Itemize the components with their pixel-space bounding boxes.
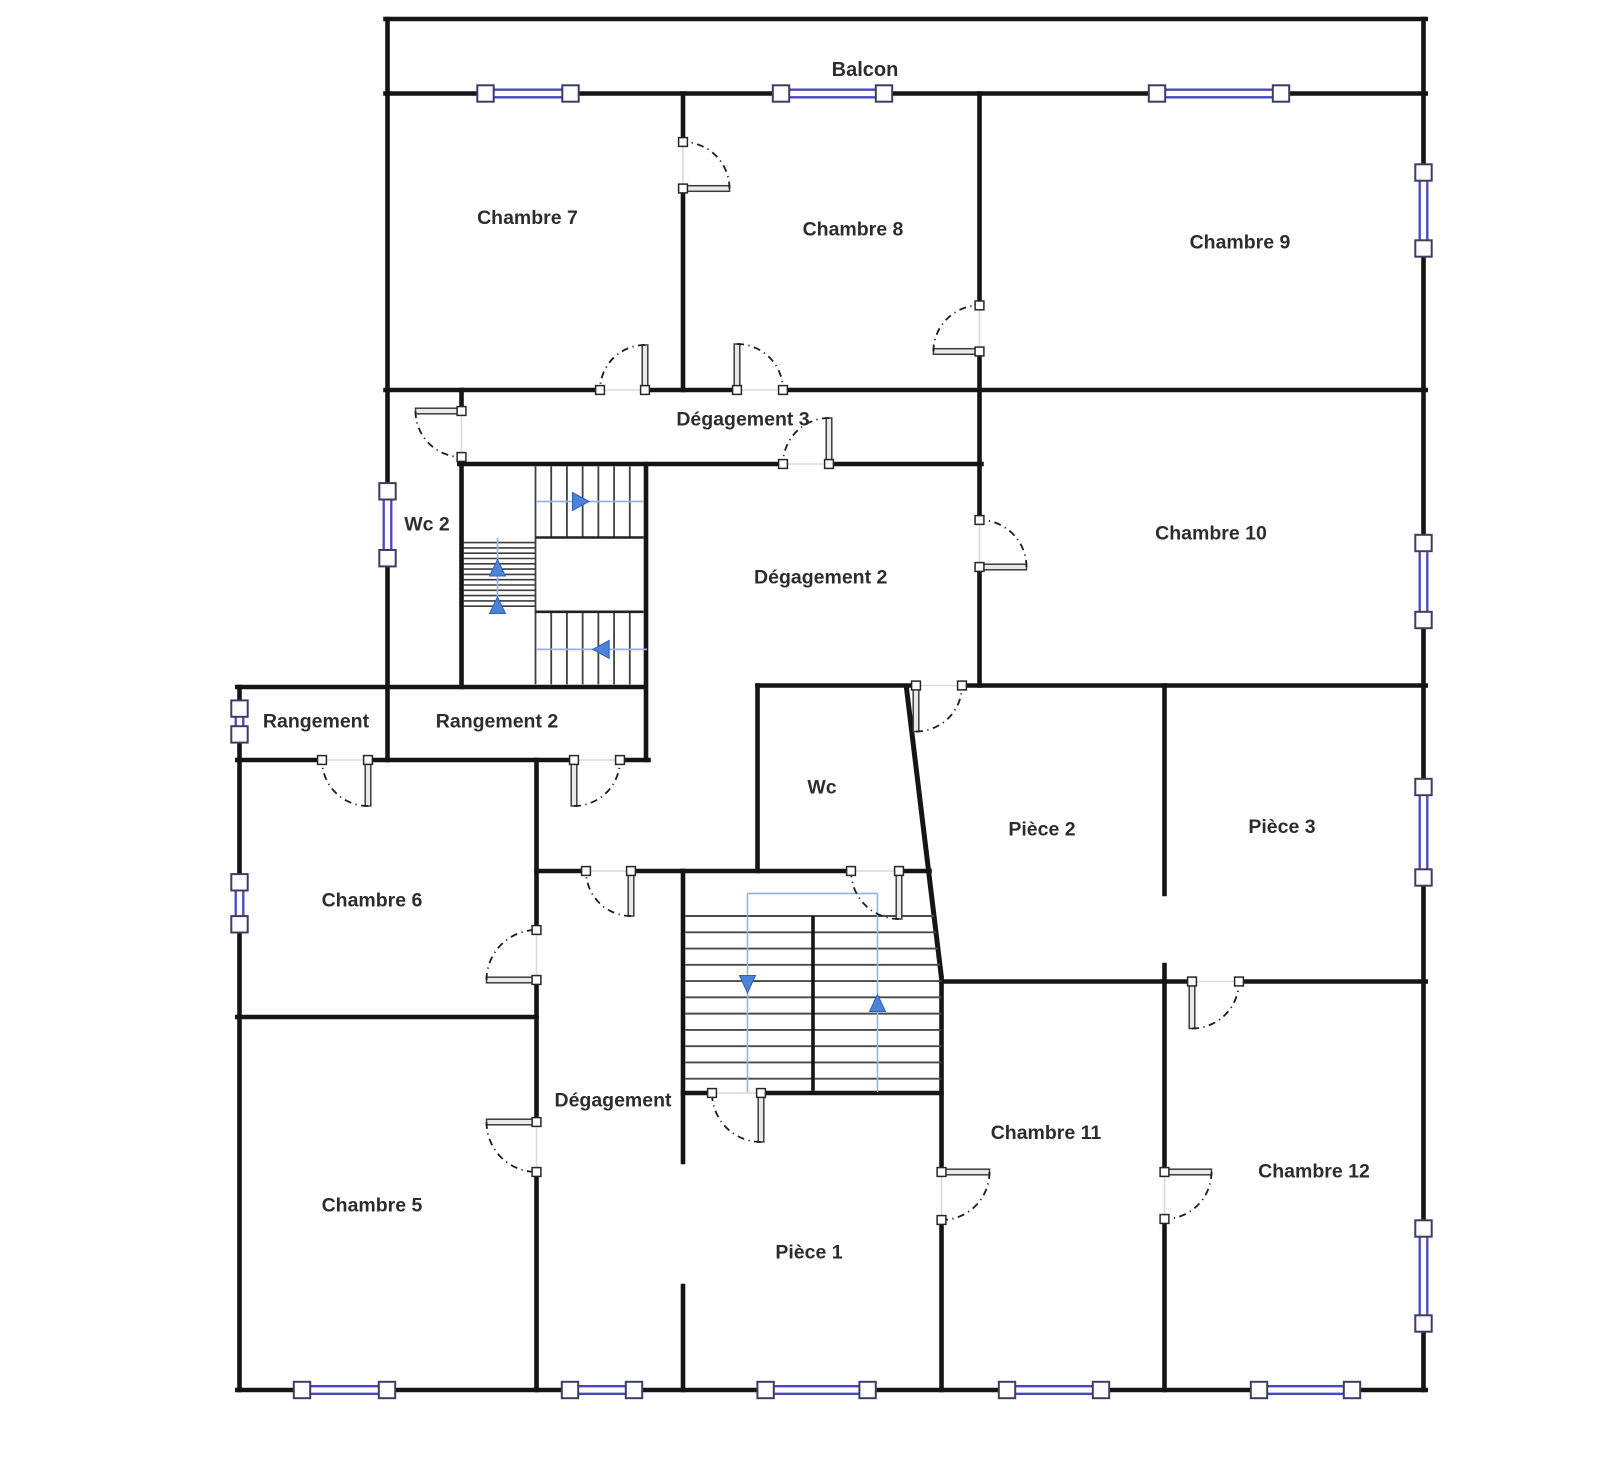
svg-text:Balcon: Balcon: [832, 59, 899, 81]
svg-text:Dégagement 3: Dégagement 3: [676, 409, 809, 431]
svg-text:Chambre 7: Chambre 7: [477, 207, 578, 229]
svg-text:Chambre 5: Chambre 5: [322, 1195, 423, 1217]
svg-text:Chambre 11: Chambre 11: [991, 1122, 1102, 1144]
svg-text:Pièce 2: Pièce 2: [1008, 819, 1075, 841]
svg-text:Chambre 6: Chambre 6: [322, 890, 423, 912]
svg-text:Chambre 9: Chambre 9: [1190, 232, 1291, 254]
svg-text:Dégagement: Dégagement: [554, 1090, 672, 1112]
svg-text:Dégagement 2: Dégagement 2: [754, 567, 887, 589]
svg-text:Rangement: Rangement: [263, 711, 370, 733]
svg-text:Wc: Wc: [807, 777, 836, 799]
svg-text:Rangement 2: Rangement 2: [436, 711, 559, 733]
svg-text:Pièce 1: Pièce 1: [775, 1242, 842, 1264]
svg-text:Wc 2: Wc 2: [404, 514, 450, 536]
svg-text:Chambre 8: Chambre 8: [803, 219, 904, 241]
svg-text:Chambre 10: Chambre 10: [1155, 523, 1267, 545]
svg-text:Pièce 3: Pièce 3: [1248, 816, 1315, 838]
svg-text:Chambre 12: Chambre 12: [1258, 1161, 1370, 1183]
